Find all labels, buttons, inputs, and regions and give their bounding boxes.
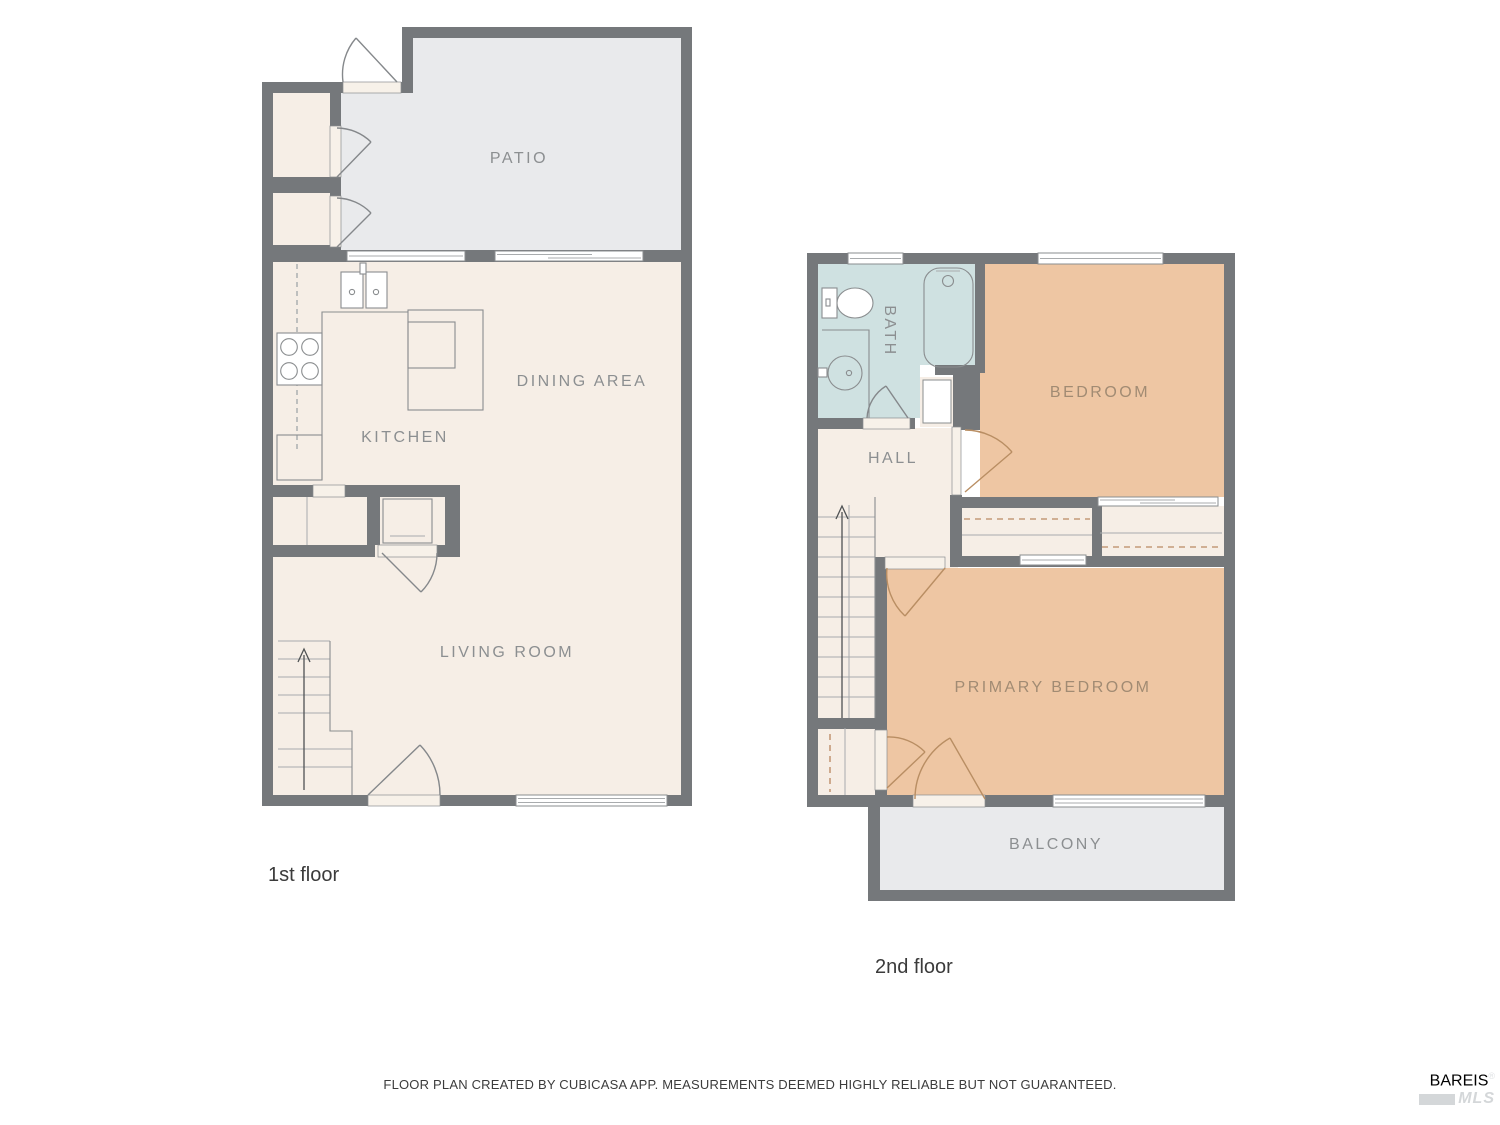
caption-second-floor: 2nd floor: [875, 956, 953, 979]
sliding-door-closet-right: [1098, 497, 1218, 506]
room-main-floor1: [273, 262, 681, 795]
floorplan-page: PATIO DINING AREA KITCHEN LIVING ROOM: [0, 0, 1500, 1125]
label-patio: PATIO: [490, 150, 548, 167]
understair-closet: [818, 728, 875, 795]
logo-registered-mark: ®: [1488, 1071, 1495, 1081]
sink-faucet: [360, 263, 366, 274]
sliding-door-patio: [495, 251, 643, 261]
label-bedroom: BEDROOM: [1050, 384, 1150, 401]
bareis-mls-logo: BAREIS® MLS: [1385, 1072, 1495, 1107]
closet-top-left-1: [273, 93, 330, 177]
window-living-room: [516, 795, 667, 806]
sliding-door-balcony: [1053, 795, 1205, 807]
floorplan-second-floor: BATH BEDROOM HALL PRIMARY BEDROOM BALCON…: [800, 248, 1240, 908]
logo-mls: MLS: [1458, 1091, 1495, 1107]
label-dining-area: DINING AREA: [517, 373, 648, 390]
entry-door-swing: [342, 38, 397, 82]
label-bath: BATH: [881, 305, 898, 356]
stairwell: [818, 497, 875, 718]
caption-first-floor: 1st floor: [268, 864, 339, 887]
label-living-room: LIVING ROOM: [440, 644, 574, 661]
niche-door-panel: [923, 380, 951, 423]
closet-left: [962, 506, 1092, 556]
label-hall: HALL: [868, 450, 918, 467]
label-primary-bedroom: PRIMARY BEDROOM: [955, 679, 1152, 696]
logo-bar: [1419, 1094, 1455, 1105]
label-balcony: BALCONY: [1009, 836, 1103, 853]
sink-basin-left: [341, 272, 363, 308]
sink-faucet-2: [818, 368, 827, 377]
disclaimer-text: FLOOR PLAN CREATED BY CUBICASA APP. MEAS…: [0, 1077, 1500, 1092]
closet-top-left-2: [273, 193, 330, 250]
logo-bareis: BAREIS: [1430, 1072, 1489, 1089]
toilet-bowl: [837, 288, 873, 318]
closet-right: [1100, 506, 1224, 556]
label-kitchen: KITCHEN: [361, 429, 449, 446]
room-bedroom: [980, 264, 1224, 497]
floorplan-first-floor: PATIO DINING AREA KITCHEN LIVING ROOM: [255, 15, 700, 895]
room-patio: [341, 38, 681, 250]
